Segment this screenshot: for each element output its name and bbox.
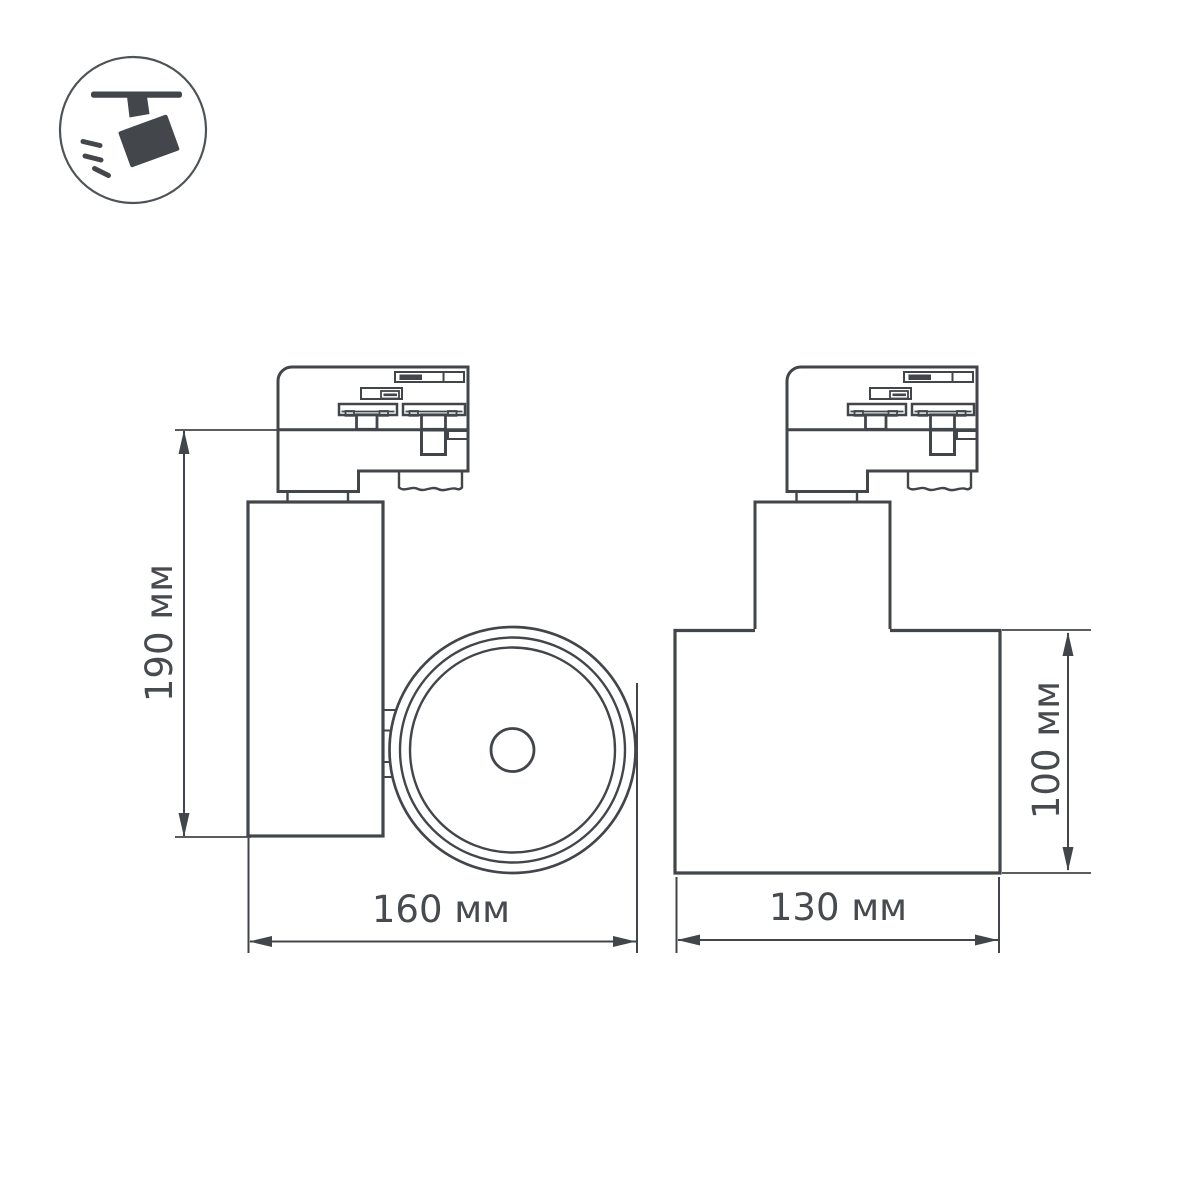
side-view: 190 мм 160 мм [138,367,637,953]
arrowhead-left [677,935,700,946]
fixture-head-drum [675,631,1000,874]
drawing-page: 190 мм 160 мм 100 мм [0,0,1200,1200]
arrowhead-right [975,935,998,946]
dimension-height-100: 100 мм [1002,630,1091,873]
arrowhead-up [179,430,190,454]
lens-outer-rim [390,627,636,873]
icon-lamp-body [118,114,180,167]
dim-label-100: 100 мм [1025,681,1068,819]
dimension-height-190: 190 мм [138,430,279,837]
icon-stem [127,97,150,118]
dim-label-190: 190 мм [138,564,181,702]
dim-label-130: 130 мм [769,886,907,929]
track-adapter-rear-view [787,367,977,502]
lens-front-face [390,627,636,873]
icon-light-rays [83,142,109,176]
fixture-body-cylinder [248,502,383,836]
arrowhead-down [179,813,190,837]
arrowhead-left [249,936,272,947]
arrowhead-down [1063,847,1074,871]
dim-label-160: 160 мм [372,888,510,931]
dimension-width-130: 130 мм [677,877,1000,953]
rear-view: 100 мм 130 мм [675,367,1091,953]
track-adapter-side-view [278,367,468,502]
arrowhead-up [1063,632,1074,656]
arrowhead-right [613,936,636,947]
technical-drawing: 190 мм 160 мм 100 мм [0,0,1200,1200]
track-spotlight-icon [60,57,206,203]
fixture-body-column [755,502,890,629]
